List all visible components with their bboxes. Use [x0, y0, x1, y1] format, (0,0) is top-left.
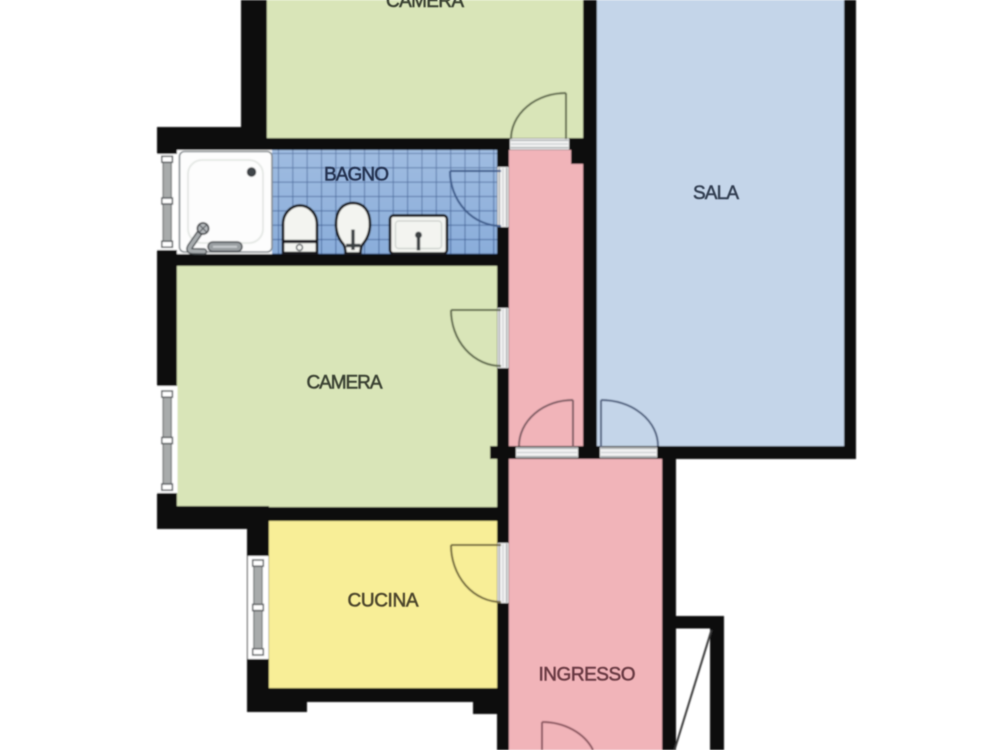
svg-text:CUCINA: CUCINA — [348, 591, 419, 612]
svg-text:INGRESSO: INGRESSO — [539, 665, 636, 686]
svg-text:BAGNO: BAGNO — [324, 165, 389, 186]
svg-text:CAMERA: CAMERA — [386, 0, 464, 12]
svg-text:CAMERA: CAMERA — [307, 373, 383, 394]
svg-text:SALA: SALA — [693, 183, 739, 204]
